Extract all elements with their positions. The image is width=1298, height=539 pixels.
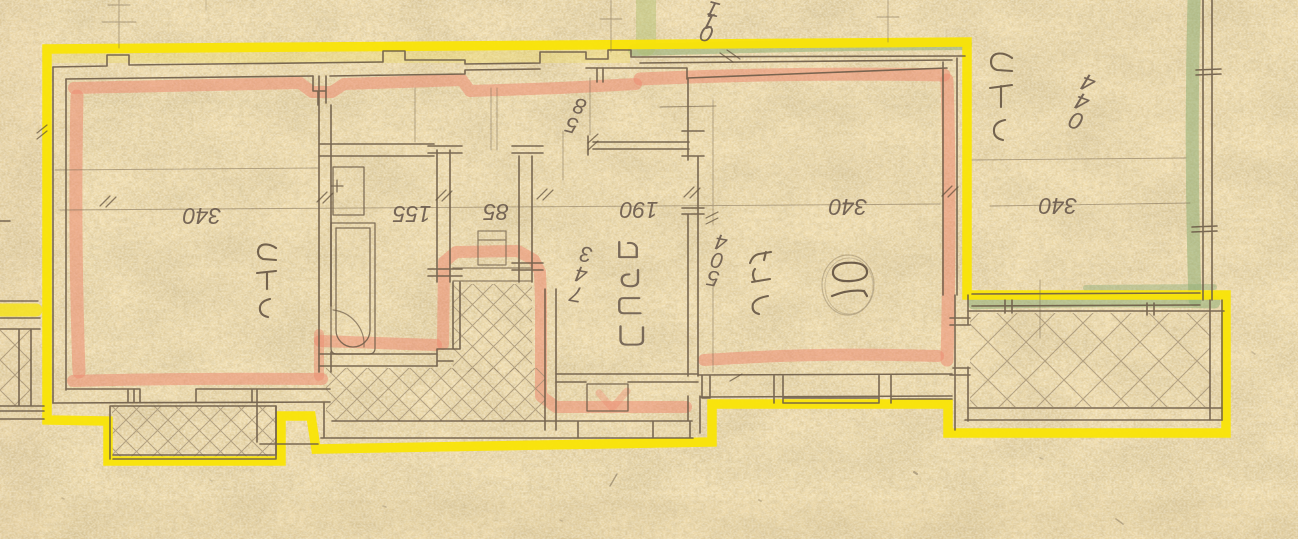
svg-text:85: 85 <box>483 199 509 225</box>
svg-text:155: 155 <box>393 201 432 227</box>
svg-text:340: 340 <box>1039 193 1078 219</box>
svg-text:340: 340 <box>183 203 222 229</box>
svg-text:340: 340 <box>829 194 868 220</box>
svg-text:190: 190 <box>620 197 659 223</box>
